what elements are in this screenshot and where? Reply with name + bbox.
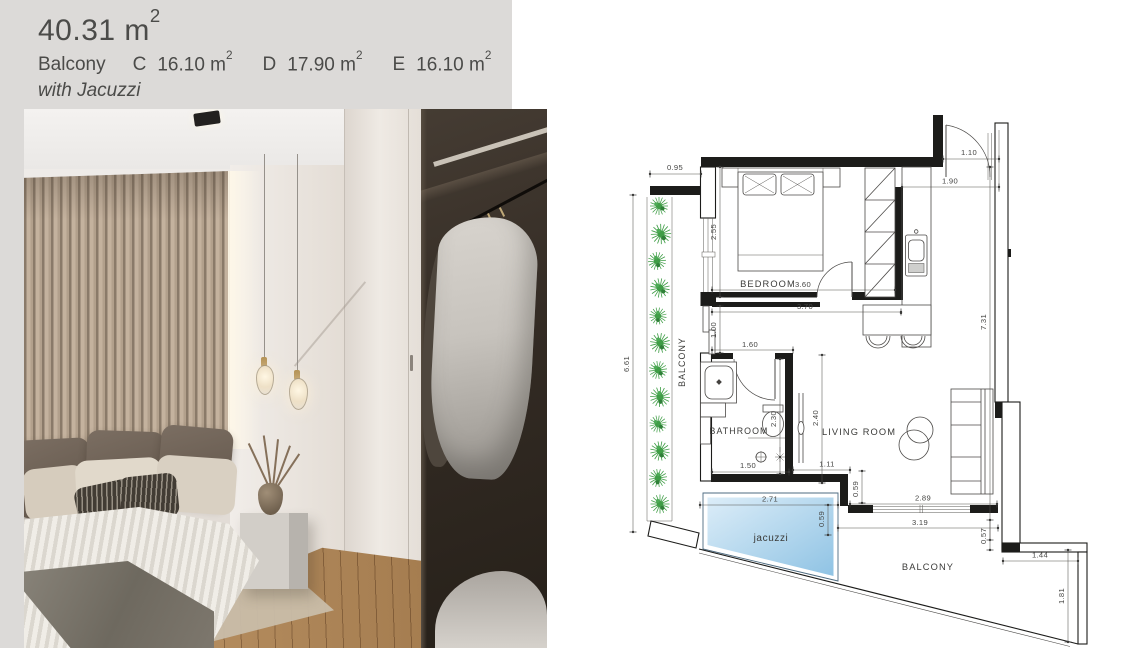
wardrobe-handle xyxy=(410,355,413,371)
dim-6-61: 6.61 xyxy=(622,356,631,372)
subtitle: with Jacuzzi xyxy=(38,80,521,102)
dim-0-95: 0.95 xyxy=(667,163,683,172)
dim-1-44: 1.44 xyxy=(1032,551,1048,560)
dim-2-30: 2.30 xyxy=(769,411,778,427)
dim-1-50: 1.50 xyxy=(740,461,756,470)
balcony-label: Balcony xyxy=(38,54,106,76)
label-bathroom: BATHROOM xyxy=(710,426,769,436)
hanging-shirt xyxy=(426,215,540,482)
bed xyxy=(722,168,840,271)
dim-1-81: 1.81 xyxy=(1057,588,1066,604)
label-living-room: LIVING ROOM xyxy=(822,427,896,437)
unit-c: C16.10 m2 xyxy=(133,53,233,76)
planter-strip xyxy=(644,197,699,548)
dimension-lines xyxy=(633,159,1078,642)
wardrobe-plan xyxy=(865,168,895,297)
living-furniture xyxy=(899,389,993,494)
white-wardrobe xyxy=(344,109,421,569)
dim-2-40: 2.40 xyxy=(811,410,820,426)
label-bedroom: BEDROOM xyxy=(740,279,796,289)
wood-slat-wall xyxy=(24,171,230,447)
dim-0-59-a: 0.59 xyxy=(851,481,860,497)
brochure-page: 40.31 m2 Balcony C16.10 m2 D17.90 m2 E16… xyxy=(0,0,1131,648)
label-jacuzzi: jacuzzi xyxy=(753,533,789,544)
dim-1-60: 1.60 xyxy=(742,340,758,349)
unit-e: E16.10 m2 xyxy=(392,53,491,76)
dim-1-00: 1.00 xyxy=(709,322,718,338)
led-glow xyxy=(228,171,262,449)
bedding-corner xyxy=(435,571,547,648)
dim-2-55: 2.55 xyxy=(709,224,718,240)
unit-d: D17.90 m2 xyxy=(263,53,363,76)
dim-1-90: 1.90 xyxy=(942,177,958,186)
label-balcony-side: BALCONY xyxy=(677,337,687,387)
balcony-areas-line: Balcony C16.10 m2 D17.90 m2 E16.10 m2 xyxy=(38,53,521,76)
sofa xyxy=(951,389,993,494)
closet-photo xyxy=(421,109,547,648)
total-area: 40.31 m2 xyxy=(38,6,521,48)
dim-0-57: 0.57 xyxy=(979,528,988,544)
label-balcony-bottom: BALCONY xyxy=(902,562,954,572)
dim-0-59-b: 0.59 xyxy=(817,511,826,527)
floor-plan: 0.95 6.61 2.55 1.00 3.60 3.70 1.60 1.10 … xyxy=(620,100,1131,648)
dim-7-31: 7.31 xyxy=(979,314,988,330)
dim-1-11: 1.11 xyxy=(819,460,834,469)
header-block: 40.31 m2 Balcony C16.10 m2 D17.90 m2 E16… xyxy=(38,6,521,102)
dim-2-89: 2.89 xyxy=(915,494,931,503)
dim-1-10: 1.10 xyxy=(961,148,977,157)
dim-3-19: 3.19 xyxy=(912,518,928,527)
pivot-door xyxy=(798,393,804,463)
dim-3-70: 3.70 xyxy=(797,302,813,311)
living-room-window xyxy=(873,505,970,513)
bedroom-photo xyxy=(24,109,421,648)
dim-3-60: 3.60 xyxy=(795,280,811,289)
dim-2-71: 2.71 xyxy=(762,495,778,504)
